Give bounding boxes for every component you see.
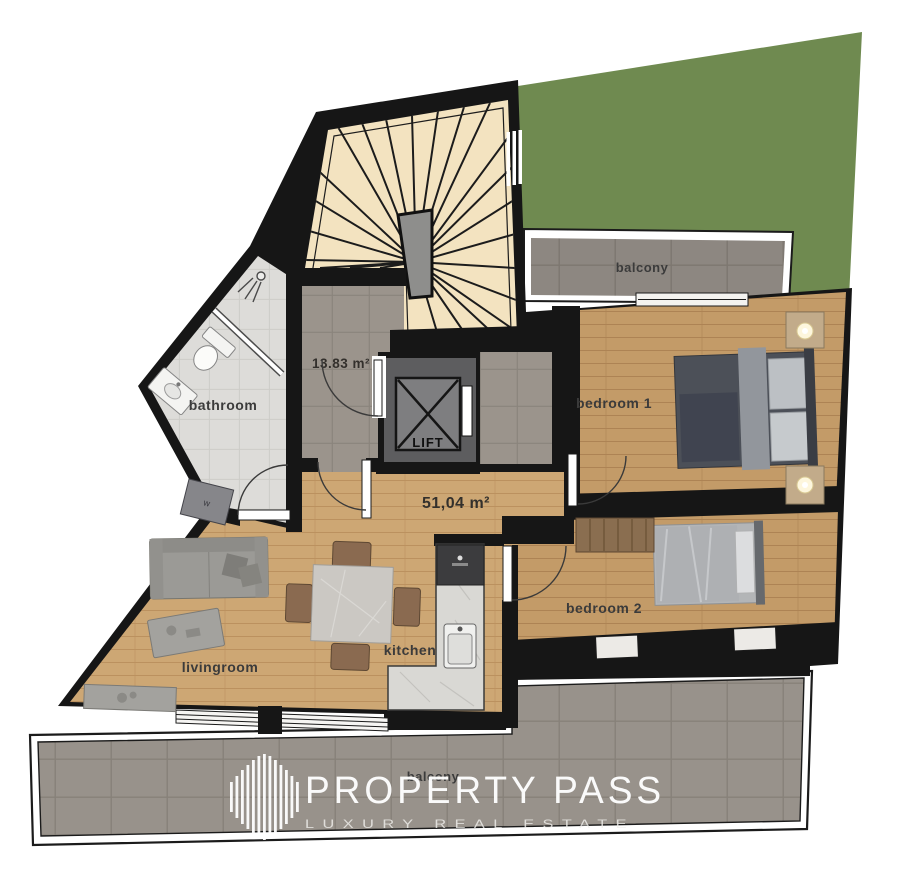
hallway-strip-floor bbox=[480, 352, 552, 464]
bathroom-label: bathroom bbox=[189, 397, 258, 413]
sofa bbox=[149, 537, 268, 599]
chair bbox=[393, 587, 420, 626]
sideboard bbox=[84, 684, 177, 711]
main-area-label: 51,04 m² bbox=[422, 495, 490, 512]
lift: LIFT bbox=[378, 352, 480, 468]
hall-area-label: 13.83 m² bbox=[312, 356, 370, 371]
brand-name: PROPERTY PASS bbox=[305, 770, 665, 812]
chair bbox=[331, 643, 370, 670]
bedroom1-label: bedroom 1 bbox=[576, 395, 652, 411]
bedroom2-bed bbox=[653, 521, 765, 608]
kitchen-label: kitchen bbox=[384, 642, 437, 658]
balcony-top: balcony bbox=[524, 229, 793, 303]
floor-plan: balcony balcony 13.83 m² bbox=[0, 0, 900, 875]
livingroom-label: livingroom bbox=[182, 659, 259, 675]
lift-label: LIFT bbox=[412, 435, 443, 450]
kitchen-sink bbox=[444, 624, 476, 668]
chair bbox=[332, 541, 371, 568]
bedroom2-dresser bbox=[576, 518, 654, 552]
dining-table bbox=[311, 565, 394, 644]
lift-door bbox=[462, 386, 472, 436]
bedroom2-label: bedroom 2 bbox=[566, 600, 642, 616]
balcony-top-label: balcony bbox=[616, 260, 669, 275]
brand-tagline: LUXURY REAL ESTATE bbox=[305, 819, 635, 831]
chair bbox=[285, 584, 312, 623]
stair-window bbox=[507, 130, 523, 186]
bedroom1-bed bbox=[674, 346, 818, 473]
bedroom1-window bbox=[636, 293, 748, 306]
